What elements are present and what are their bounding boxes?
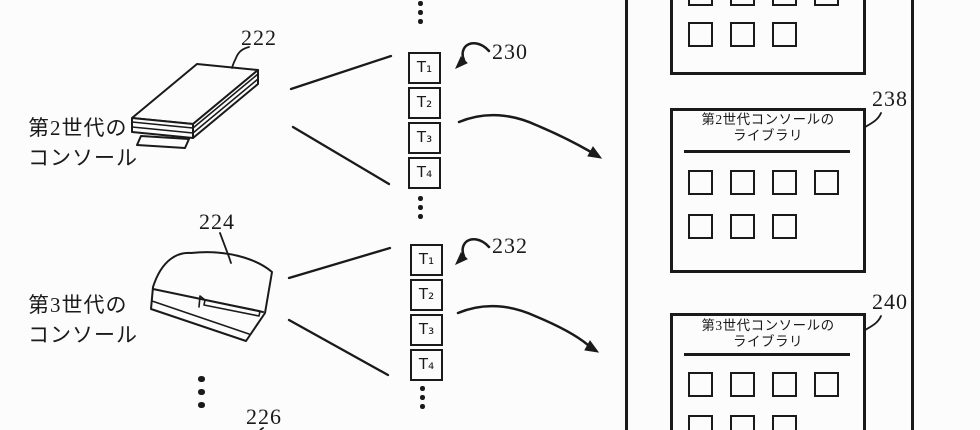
connector-lines	[289, 56, 391, 375]
game-title-square	[688, 415, 713, 430]
game-title-square	[772, 415, 797, 430]
library-gen3-title: 第3世代コンソールの ライブラリ	[672, 318, 864, 350]
game-title-square	[772, 372, 797, 397]
ref-232: 232	[492, 233, 528, 259]
game-title-square	[814, 0, 839, 6]
gen2-console-label-line1: 第2世代の	[28, 113, 138, 143]
title-box: T₃	[408, 122, 441, 154]
ref-222: 222	[241, 25, 277, 51]
title-box: T₂	[408, 87, 441, 119]
title-box: T₂	[410, 279, 443, 311]
leader-238	[865, 113, 881, 127]
library-gen2-title: 第2世代コンソールの ライブラリ	[672, 112, 864, 144]
game-title-square	[730, 214, 755, 239]
library-gen2-title-rule	[684, 150, 850, 153]
game-title-square	[772, 170, 797, 195]
game-title-square	[814, 170, 839, 195]
gen3-console-label-line1: 第3世代の	[28, 290, 138, 320]
game-title-square	[814, 372, 839, 397]
gen2-console-label-line2: コンソール	[28, 143, 138, 173]
game-title-square	[772, 0, 797, 6]
outer-boundary-line-right	[911, 0, 914, 430]
library-gen2-title-line2: ライブラリ	[672, 128, 864, 144]
library-gen3-title-line1: 第3世代コンソールの	[672, 318, 864, 334]
game-title-square	[772, 22, 797, 47]
game-title-square	[730, 22, 755, 47]
ref-224: 224	[199, 209, 235, 235]
flow-arrow-to-238	[459, 115, 601, 158]
game-title-square	[730, 372, 755, 397]
ref-238: 238	[872, 86, 908, 112]
gen2-console-label: 第2世代の コンソール	[28, 113, 138, 173]
library-gen3-title-rule	[684, 353, 850, 356]
connector-gen3-bottom	[289, 320, 388, 375]
game-title-square	[688, 22, 713, 47]
game-title-square	[688, 170, 713, 195]
outer-boundary-line-left	[625, 0, 628, 430]
ref-240: 240	[872, 289, 908, 315]
gen3-console-drawing	[151, 233, 272, 341]
connector-gen2-bottom	[293, 127, 389, 184]
game-title-square	[688, 214, 713, 239]
game-title-square	[688, 0, 713, 6]
connector-gen3-top	[289, 248, 390, 278]
ref-226: 226	[246, 404, 282, 430]
library-gen2-title-line1: 第2世代コンソールの	[672, 112, 864, 128]
title-box: T₄	[410, 349, 443, 381]
game-title-square	[688, 372, 713, 397]
game-title-square	[772, 214, 797, 239]
gen2-console-drawing	[132, 47, 258, 148]
title-box: T₁	[410, 244, 443, 276]
flow-arrow-to-240	[458, 306, 598, 352]
gen3-console-label: 第3世代の コンソール	[28, 290, 138, 350]
game-title-square	[730, 170, 755, 195]
ref-230: 230	[492, 39, 528, 65]
leader-240	[865, 316, 881, 330]
title-box: T₃	[410, 314, 443, 346]
title-box: T₁	[408, 52, 441, 84]
game-title-square	[730, 415, 755, 430]
gen3-console-label-line2: コンソール	[28, 320, 138, 350]
game-title-square	[730, 0, 755, 6]
arrow-230	[456, 43, 489, 68]
connector-gen2-top	[291, 56, 391, 89]
library-gen3-title-line2: ライブラリ	[672, 334, 864, 350]
arrow-232	[456, 239, 489, 264]
title-box: T₄	[408, 157, 441, 189]
patent-figure: 第2世代の コンソール 第3世代の コンソール 222 224 226 230 …	[0, 0, 980, 430]
